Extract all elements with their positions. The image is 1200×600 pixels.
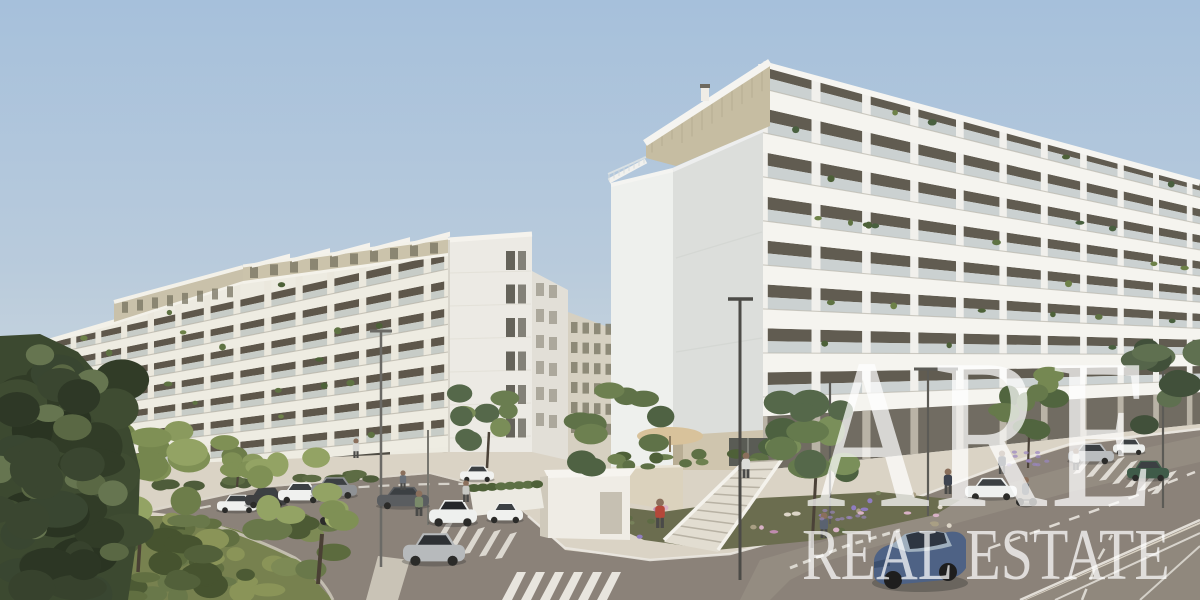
svg-text:REAL ESTATE: REAL ESTATE (802, 515, 1170, 596)
